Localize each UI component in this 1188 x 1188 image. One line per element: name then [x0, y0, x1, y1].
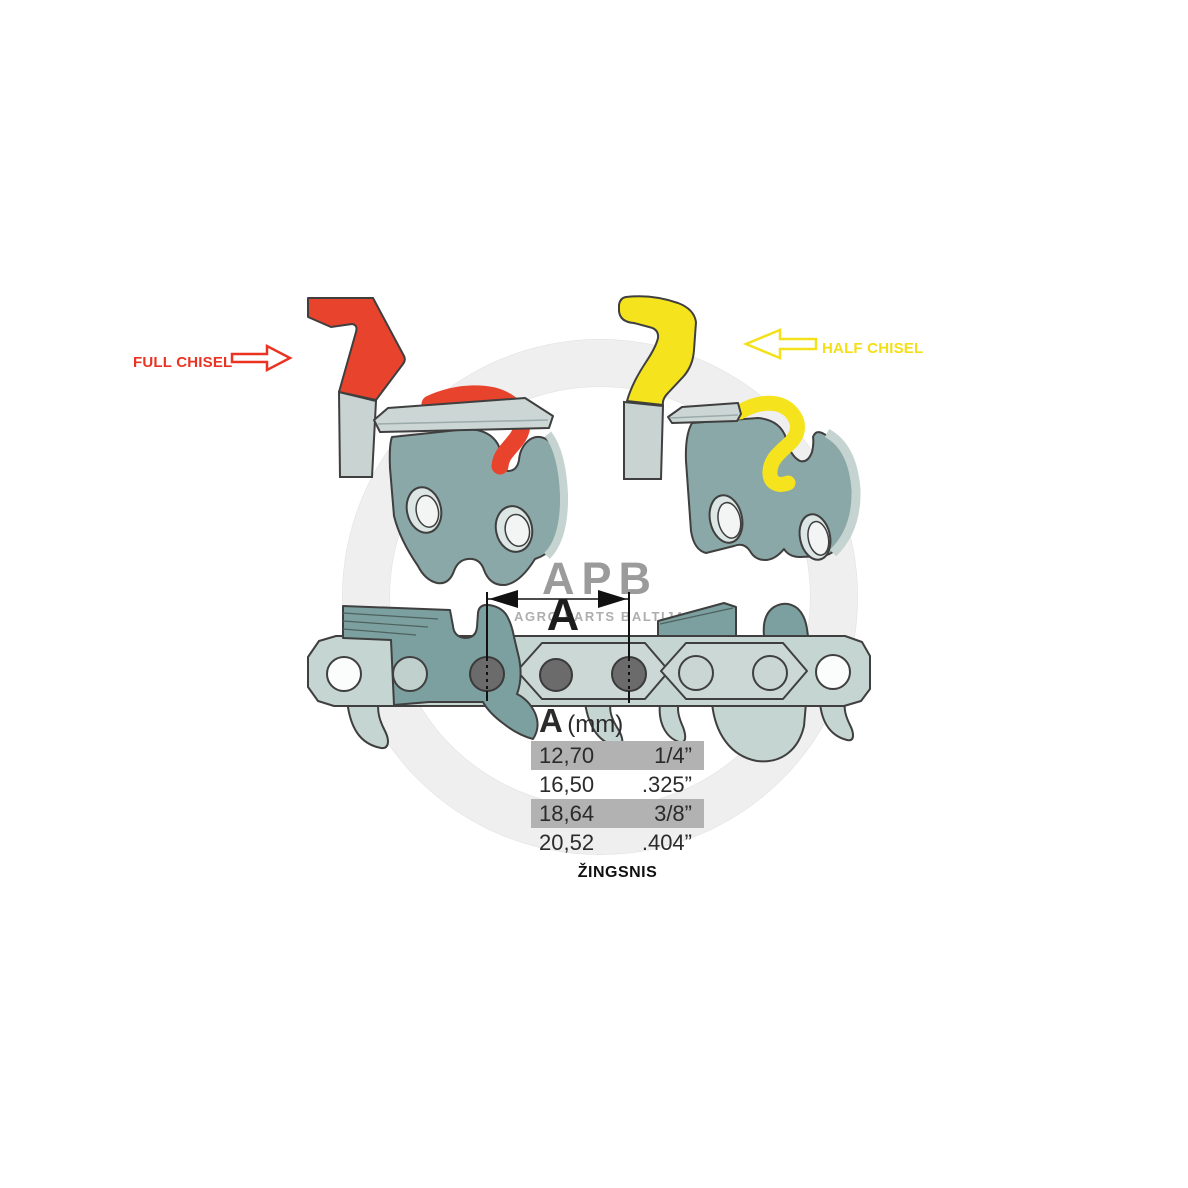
pitch-table-row: 18,64 3/8”	[531, 799, 704, 828]
full-chisel-label: FULL CHISEL	[133, 354, 232, 371]
pitch-mm-value: 18,64	[539, 801, 594, 827]
pitch-table-row: 16,50 .325”	[531, 770, 704, 799]
pitch-table-caption: ŽINGSNIS	[531, 864, 704, 882]
pitch-inch-value: .325”	[642, 772, 692, 798]
chain-illustration	[0, 0, 1188, 1188]
pitch-inch-value: 3/8”	[654, 801, 692, 827]
pitch-table-header-letter: A	[539, 702, 563, 739]
full-chisel-arrow-icon	[230, 343, 294, 373]
pitch-dimension-label: A	[538, 592, 588, 637]
pitch-table: A (mm) 12,70 1/4” 16,50 .325” 18,64 3/8”…	[531, 702, 704, 882]
pitch-mm-value: 20,52	[539, 830, 594, 856]
half-chisel-arrow-icon	[734, 327, 818, 361]
pitch-mm-value: 12,70	[539, 743, 594, 769]
half-chisel-label: HALF CHISEL	[822, 340, 923, 357]
pitch-inch-value: 1/4”	[654, 743, 692, 769]
pitch-inch-value: .404”	[642, 830, 692, 856]
half-chisel-cutter-3d	[668, 403, 856, 563]
pitch-table-row: 20,52 .404”	[531, 828, 704, 857]
half-chisel-profile-shape	[619, 296, 696, 479]
full-chisel-cutter-3d	[374, 394, 565, 585]
pitch-table-header-unit: (mm)	[567, 711, 623, 738]
diagram-canvas: APB AGRO PARTS BALTIJA	[0, 0, 1188, 1188]
pitch-table-row: 12,70 1/4”	[531, 741, 704, 770]
pitch-table-header: A (mm)	[539, 702, 704, 740]
pitch-mm-value: 16,50	[539, 772, 594, 798]
